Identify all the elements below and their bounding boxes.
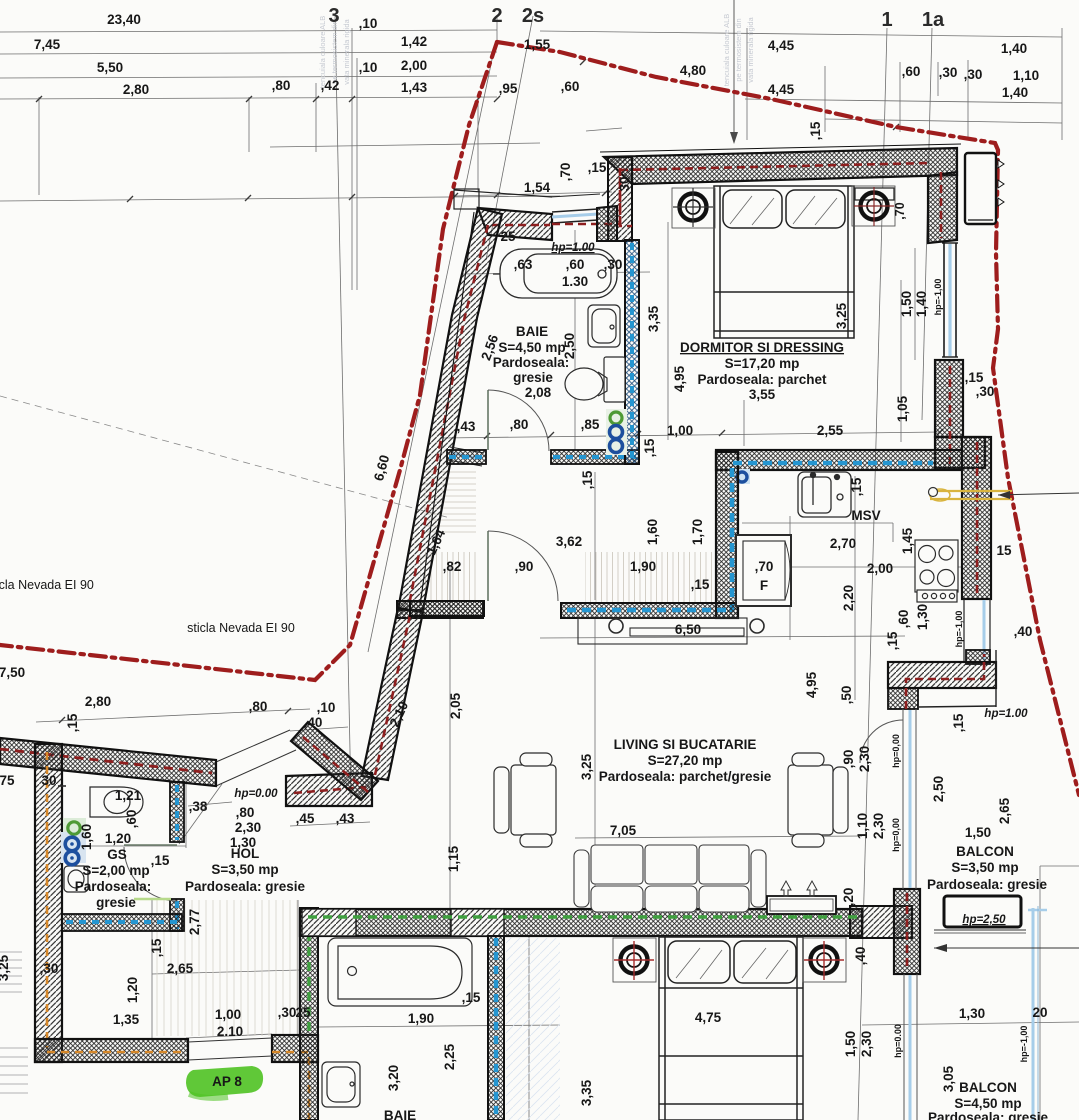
svg-text:S=4,50 mp: S=4,50 mp (498, 340, 565, 355)
svg-text:5,50: 5,50 (97, 60, 123, 75)
svg-text:1,43: 1,43 (401, 80, 428, 95)
svg-text:,42: ,42 (321, 78, 340, 93)
svg-text:BALCON: BALCON (956, 844, 1014, 859)
svg-text:2,65: 2,65 (997, 797, 1012, 824)
svg-text:,90: ,90 (515, 559, 534, 574)
svg-text:3,25: 3,25 (579, 753, 594, 780)
svg-text:hp=1.00: hp=1.00 (551, 242, 595, 254)
svg-text:,15: ,15 (151, 853, 170, 868)
svg-text:1,50: 1,50 (965, 825, 991, 840)
svg-text:1: 1 (881, 9, 892, 31)
svg-text:30: 30 (617, 176, 632, 191)
svg-text:hp=-1,00: hp=-1,00 (1019, 1026, 1029, 1063)
svg-text:3,55: 3,55 (749, 387, 776, 402)
svg-text:,70: ,70 (893, 202, 907, 219)
svg-text:2,65: 2,65 (167, 961, 194, 976)
svg-text:,60: ,60 (561, 79, 580, 94)
svg-text:,10: ,10 (359, 16, 378, 31)
svg-text:2,50: 2,50 (931, 776, 946, 802)
svg-text:2,55: 2,55 (817, 423, 844, 438)
svg-text:,70: ,70 (558, 163, 573, 182)
svg-text:,15: ,15 (588, 160, 607, 175)
svg-text:2,20: 2,20 (841, 585, 856, 611)
svg-text:1,00: 1,00 (215, 1007, 241, 1022)
svg-text:,70: ,70 (755, 559, 774, 574)
svg-text:S=17,20 mp: S=17,20 mp (725, 356, 800, 371)
svg-text:DORMITOR SI DRESSING: DORMITOR SI DRESSING (680, 340, 844, 355)
svg-text:,15: ,15 (885, 631, 900, 650)
svg-text:,15: ,15 (849, 477, 864, 496)
svg-text:Pardoseala: gresie: Pardoseala: gresie (927, 877, 1048, 892)
svg-text:,63: ,63 (514, 257, 533, 272)
svg-text:MSV: MSV (851, 508, 880, 523)
svg-text:3,25: 3,25 (0, 954, 11, 981)
svg-text:,80: ,80 (236, 805, 255, 820)
svg-text:,80: ,80 (272, 78, 291, 93)
svg-text:,30: ,30 (604, 257, 623, 272)
svg-text:,60: ,60 (902, 64, 921, 79)
svg-text:2s: 2s (522, 5, 544, 27)
svg-text:1,54: 1,54 (524, 180, 551, 195)
svg-text:6,50: 6,50 (675, 622, 701, 637)
svg-text:Pardoseala: gresie: Pardoseala: gresie (928, 1110, 1049, 1120)
svg-text:F: F (760, 578, 768, 593)
svg-text:75: 75 (0, 773, 15, 788)
svg-text:3,35: 3,35 (646, 305, 661, 332)
svg-text:hp=-1,00: hp=-1,00 (933, 279, 943, 316)
svg-text:hp=-1,00: hp=-1,00 (954, 611, 964, 648)
svg-text:,38: ,38 (189, 799, 208, 814)
svg-text:Pardoseala:: Pardoseala: (75, 879, 152, 894)
svg-text:1,70: 1,70 (690, 519, 705, 545)
svg-text:1,60: 1,60 (645, 519, 660, 545)
svg-text:25: 25 (295, 1005, 311, 1020)
svg-text:,15: ,15 (149, 938, 164, 957)
svg-text:,45: ,45 (296, 811, 315, 826)
svg-text:1,20: 1,20 (105, 831, 131, 846)
svg-text:,30: ,30 (976, 384, 995, 399)
svg-text:hp=0.00: hp=0.00 (893, 1024, 903, 1058)
svg-text:4,80: 4,80 (680, 63, 706, 78)
svg-text:1a: 1a (922, 9, 945, 31)
svg-text:sticla Nevada EI 90: sticla Nevada EI 90 (0, 578, 94, 592)
svg-text:7,45: 7,45 (34, 37, 61, 52)
svg-text:BAIE: BAIE (516, 324, 548, 339)
svg-text:1,20: 1,20 (125, 977, 140, 1003)
svg-text:LIVING SI BUCATARIE: LIVING SI BUCATARIE (614, 737, 757, 752)
svg-text:2,50: 2,50 (562, 333, 577, 359)
svg-text:1,10: 1,10 (855, 813, 870, 839)
svg-text:2,80: 2,80 (123, 82, 149, 97)
svg-text:,15: ,15 (65, 713, 80, 732)
svg-text:gresie: gresie (513, 370, 553, 385)
svg-text:2.10: 2.10 (217, 1024, 243, 1039)
svg-text:,15: ,15 (462, 990, 481, 1005)
svg-text:,15: ,15 (691, 577, 710, 592)
svg-text:3,25: 3,25 (834, 302, 849, 329)
svg-text:,30: ,30 (278, 1005, 297, 1020)
svg-text:hp=1.00: hp=1.00 (984, 708, 1028, 720)
svg-text:2,30: 2,30 (859, 1031, 874, 1057)
svg-text:1,30: 1,30 (230, 835, 256, 850)
svg-text:,43: ,43 (336, 811, 355, 826)
svg-text:7,50: 7,50 (0, 665, 25, 680)
svg-text:,50: ,50 (839, 686, 854, 705)
svg-text:1,90: 1,90 (408, 1011, 434, 1026)
svg-text:,30: ,30 (964, 67, 983, 82)
svg-text:2,05: 2,05 (448, 692, 463, 719)
svg-text:,90: ,90 (841, 750, 856, 769)
svg-text:3,62: 3,62 (556, 534, 582, 549)
svg-text:1,00: 1,00 (667, 423, 693, 438)
svg-text:S=3,50 mp: S=3,50 mp (211, 862, 278, 877)
svg-text:3,35: 3,35 (579, 1079, 594, 1106)
svg-text:,15: ,15 (808, 121, 823, 140)
svg-text:,60: ,60 (124, 810, 139, 829)
svg-text:2,80: 2,80 (85, 694, 111, 709)
svg-text:25: 25 (500, 229, 516, 244)
svg-text:vata minerala rigida: vata minerala rigida (342, 18, 351, 84)
svg-text:1,15: 1,15 (446, 845, 461, 872)
svg-text:1,50: 1,50 (899, 291, 914, 317)
svg-text:3,05: 3,05 (941, 1065, 956, 1092)
svg-text:2,70: 2,70 (830, 536, 856, 551)
svg-text:2,25: 2,25 (442, 1043, 457, 1070)
svg-text:2,30: 2,30 (871, 813, 886, 839)
svg-text:30: 30 (41, 773, 56, 788)
svg-text:,40: ,40 (1014, 624, 1033, 639)
svg-text:2,30: 2,30 (235, 820, 261, 835)
svg-text:1,40: 1,40 (1002, 85, 1028, 100)
svg-text:,15: ,15 (642, 438, 657, 457)
svg-text:BALCON: BALCON (959, 1080, 1017, 1095)
svg-text:tencuiala culoare ALB: tencuiala culoare ALB (722, 14, 731, 87)
svg-text:hp=0,00: hp=0,00 (891, 818, 901, 852)
svg-text:1,30: 1,30 (915, 604, 930, 630)
svg-text:,80: ,80 (249, 699, 268, 714)
svg-text:2,00: 2,00 (867, 561, 893, 576)
svg-text:,80: ,80 (510, 417, 529, 432)
svg-text:Pardoseala: parchet/gresie: Pardoseala: parchet/gresie (599, 769, 772, 784)
svg-text:2,30: 2,30 (857, 746, 872, 772)
svg-text:1,40: 1,40 (914, 291, 929, 317)
svg-text:1,50: 1,50 (843, 1031, 858, 1057)
svg-text:pe termosistem din: pe termosistem din (734, 18, 743, 81)
svg-text:,40: ,40 (304, 715, 323, 730)
svg-text:1.30: 1.30 (562, 274, 588, 289)
svg-text:1,10: 1,10 (1013, 68, 1039, 83)
svg-text:,43: ,43 (457, 419, 476, 434)
svg-text:2,08: 2,08 (525, 385, 552, 400)
svg-text:Pardoseala: parchet: Pardoseala: parchet (697, 372, 827, 387)
svg-text:,15: ,15 (580, 470, 595, 489)
svg-text:1,42: 1,42 (401, 34, 427, 49)
svg-text:1,55: 1,55 (524, 37, 551, 52)
svg-text:2,00: 2,00 (401, 58, 427, 73)
svg-text:vata minerala rigida: vata minerala rigida (746, 16, 755, 82)
svg-text:23,40: 23,40 (107, 12, 141, 27)
svg-text:3: 3 (328, 5, 339, 27)
svg-text:GS: GS (107, 847, 127, 862)
svg-text:S=4,50 mp: S=4,50 mp (954, 1096, 1021, 1111)
svg-text:2: 2 (491, 5, 502, 27)
svg-text:,30: ,30 (40, 961, 59, 976)
svg-text:hp=0,00: hp=0,00 (891, 734, 901, 768)
svg-text:Pardoseala: gresie: Pardoseala: gresie (185, 879, 306, 894)
svg-text:AP 8: AP 8 (212, 1074, 242, 1089)
svg-text:,40: ,40 (853, 947, 868, 966)
svg-text:20: 20 (1032, 1005, 1047, 1020)
svg-text:,10: ,10 (359, 60, 378, 75)
svg-text:S=3,50 mp: S=3,50 mp (951, 860, 1018, 875)
svg-text:sticla Nevada EI 90: sticla Nevada EI 90 (187, 621, 295, 635)
svg-text:1,05: 1,05 (895, 395, 910, 422)
svg-text:,30: ,30 (939, 65, 958, 80)
svg-text:,60: ,60 (566, 257, 585, 272)
svg-text:,20: ,20 (841, 888, 856, 907)
svg-text:Pardoseala:: Pardoseala: (493, 355, 570, 370)
svg-text:,10: ,10 (317, 700, 336, 715)
svg-text:pe termosistem din: pe termosistem din (330, 20, 339, 83)
svg-text:2,77: 2,77 (187, 909, 202, 935)
svg-text:4,95: 4,95 (804, 671, 819, 698)
svg-text:S=27,20 mp: S=27,20 mp (648, 753, 723, 768)
svg-text:hp=2,50: hp=2,50 (962, 914, 1006, 926)
svg-text:,15: ,15 (951, 713, 966, 732)
svg-text:,82: ,82 (443, 559, 462, 574)
svg-text:3,20: 3,20 (386, 1065, 401, 1091)
svg-text:1,21: 1,21 (115, 788, 142, 803)
svg-text:hp=0.00: hp=0.00 (234, 788, 278, 800)
svg-text:1,90: 1,90 (630, 559, 656, 574)
svg-text:S=2,00 mp: S=2,00 mp (82, 863, 149, 878)
svg-text:4,95: 4,95 (672, 365, 687, 392)
svg-text:4,75: 4,75 (695, 1010, 722, 1025)
svg-text:gresie: gresie (96, 895, 136, 910)
svg-text:1,45: 1,45 (900, 527, 915, 554)
svg-text:4,45: 4,45 (768, 82, 795, 97)
svg-text:1,40: 1,40 (1001, 41, 1027, 56)
svg-text:15: 15 (996, 543, 1012, 558)
svg-text:1,30: 1,30 (959, 1006, 985, 1021)
svg-text:7,05: 7,05 (610, 823, 637, 838)
svg-text:1,35: 1,35 (113, 1012, 140, 1027)
svg-text:,60: ,60 (896, 610, 911, 629)
svg-text:,85: ,85 (581, 417, 600, 432)
svg-text:4,45: 4,45 (768, 38, 795, 53)
svg-text:1,60: 1,60 (79, 824, 94, 850)
svg-text:,95: ,95 (499, 81, 518, 96)
svg-text:,15: ,15 (965, 370, 984, 385)
svg-text:BAIE: BAIE (384, 1108, 416, 1120)
